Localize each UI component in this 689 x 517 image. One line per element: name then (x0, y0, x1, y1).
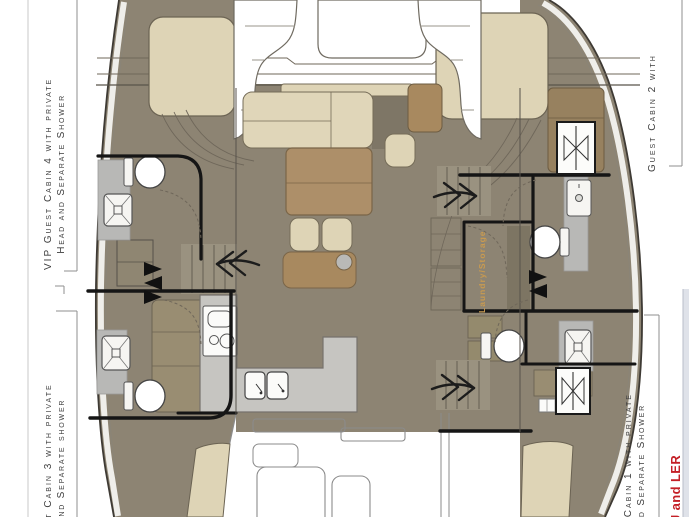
label-line: nd Separate Shower (635, 393, 648, 517)
right-edge-strip (683, 289, 689, 517)
label-line: nd Separate shower (55, 383, 68, 517)
aft-steps-starboard (521, 442, 573, 517)
washbasin-icon (567, 180, 591, 216)
label-red-note: J and LER (668, 455, 683, 517)
toilet-icon (481, 330, 524, 362)
shower-drain-icon (102, 336, 130, 370)
label-guest-cabin-2: Guest Cabin 2 with (646, 54, 659, 172)
fore-lounge-port (149, 17, 235, 116)
fore-sunpad (318, 0, 426, 58)
label-laundry-storage: Laundry/Storage (477, 230, 487, 313)
deck-plan-page: VIP Guest Cabin 4 with private Head and … (0, 0, 689, 517)
label-line: est Cabin 3 with private (42, 383, 55, 517)
label-line: Guest Cabin 2 with (646, 54, 659, 172)
shower-drain-icon (565, 330, 591, 364)
accordion-door-icon (144, 262, 162, 304)
double-sink-icon (245, 372, 288, 399)
saloon-sofa (243, 92, 373, 148)
escape-hatch-icon (557, 122, 595, 174)
laundry-shelves (507, 226, 530, 309)
toilet-icon (530, 226, 569, 258)
label-guest-cabin-1: st Cabin 1 with private nd Separate Show… (622, 393, 648, 517)
saloon-table (286, 148, 372, 215)
label-line: VIP Guest Cabin 4 with private (42, 78, 55, 270)
shower-drain-icon (104, 194, 132, 226)
toilet-icon (124, 380, 165, 412)
toilet-icon (124, 156, 165, 188)
label-guest-cabin-3: est Cabin 3 with private nd Separate sho… (42, 383, 68, 517)
escape-hatch-icon (556, 368, 590, 414)
label-line: st Cabin 1 with private (622, 393, 635, 517)
deck-plan-drawing (0, 0, 689, 517)
label-vip-cabin-4: VIP Guest Cabin 4 with private Head and … (42, 78, 68, 270)
label-line: Head and Separate Shower (55, 78, 68, 270)
stairs-port (181, 244, 237, 294)
